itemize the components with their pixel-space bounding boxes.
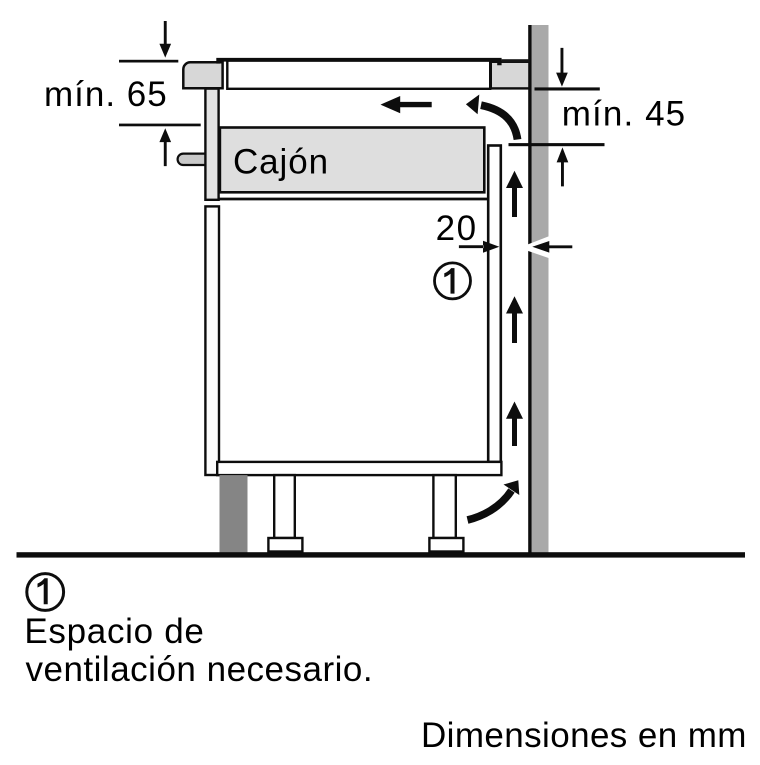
svg-text:Espacio de: Espacio de (24, 612, 204, 651)
svg-text:Cajón: Cajón (233, 143, 329, 182)
svg-text:ventilación necesario.: ventilación necesario. (26, 650, 374, 689)
svg-text:mín. 45: mín. 45 (562, 94, 686, 133)
svg-text:mín. 65: mín. 65 (44, 75, 168, 114)
svg-text:Dimensiones en mm: Dimensiones en mm (421, 716, 747, 755)
svg-text:20: 20 (436, 209, 478, 248)
